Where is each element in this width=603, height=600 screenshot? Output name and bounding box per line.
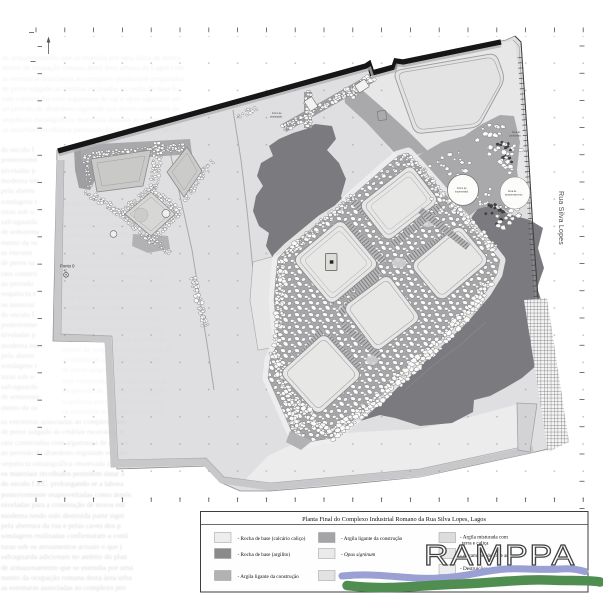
svg-text:de peixe sa: de peixe sa (1, 258, 35, 267)
svg-text:mento da oc: mento da oc (1, 238, 39, 247)
svg-text:pela abertu: pela abertu (1, 186, 35, 195)
svg-text:niveladas p: niveladas p (1, 330, 36, 339)
svg-text:impermeabil.: impermeabil. (455, 190, 469, 193)
svg-text:moderna ten: moderna ten (1, 176, 39, 185)
svg-text:mento da ocupação romana desta: mento da ocupação romana desta área urba (1, 573, 132, 582)
svg-text:salvaguarda adicionais no ambi: salvaguarda adicionais no ambito do plan (1, 552, 127, 561)
svg-text:posteriorme: posteriorme (1, 155, 38, 164)
svg-text:do seculo I: do seculo I (1, 145, 35, 154)
svg-text:armazenamento: armazenamento (505, 193, 523, 196)
svg-text:de armazena: de armazena (1, 227, 40, 236)
svg-text:pela abertu: pela abertu (1, 351, 35, 360)
svg-text:salvaguarda: salvaguarda (1, 382, 38, 391)
svg-text:niveladas p: niveladas p (1, 166, 36, 175)
svg-text:- Argila ligante da construção: - Argila ligante da construção (238, 574, 300, 580)
svg-text:Rua Silva Lopes: Rua Silva Lopes (557, 191, 564, 245)
svg-text:os materiai: os materiai (1, 300, 35, 309)
svg-text:posteriorme: posteriorme (1, 320, 38, 329)
svg-text:ao periodo: ao periodo (1, 279, 33, 288)
svg-text:preparação: preparação (270, 115, 283, 118)
svg-text:ram constru: ram constru (1, 269, 37, 278)
svg-text:- Opus signinum: - Opus signinum (341, 552, 376, 558)
svg-text:sondagens r: sondagens r (1, 197, 38, 206)
svg-text:pela abertura da rua e pelas c: pela abertura da rua e pelas caves dos p (1, 521, 121, 530)
svg-text:de armazenamento que se estend: de armazenamento que se estendia por uma (1, 563, 134, 572)
svg-text:sondagens realizadas confirmar: sondagens realizadas confirmaram a conti (1, 531, 128, 540)
svg-text:salvaguarda: salvaguarda (1, 217, 38, 226)
svg-text:42: 42 (64, 269, 68, 273)
svg-text:moderna ten: moderna ten (1, 341, 39, 350)
svg-text:sondagens r: sondagens r (1, 361, 38, 370)
svg-text:moderna tendo sido destruida p: moderna tendo sido destruida parte signi (1, 511, 124, 520)
svg-text:Planta Final do Complexo Indus: Planta Final do Complexo Industrial Roma… (302, 516, 486, 523)
svg-text:as estrutur: as estrutur (1, 248, 33, 257)
svg-text:- Argila ligante da construção: - Argila ligante da construção (341, 536, 403, 542)
svg-text:mento da oc: mento da oc (1, 403, 39, 412)
svg-text:turas sob o: turas sob o (1, 207, 34, 216)
svg-text:- Rocha de base (argilito): - Rocha de base (argilito) (238, 551, 291, 558)
svg-text:as estruturas associadas ao co: as estruturas associadas ao complexo pro (1, 583, 126, 592)
svg-text:turas sob o: turas sob o (1, 372, 34, 381)
svg-text:Ponto 0: Ponto 0 (60, 264, 75, 269)
svg-text:combustão: combustão (509, 134, 521, 137)
svg-text:- Rocha de base (calcário cali: - Rocha de base (calcário caliço) (238, 535, 306, 542)
svg-text:sequência e: sequência e (1, 289, 37, 298)
svg-text:de armazena: de armazena (1, 392, 40, 401)
svg-text:turas sob os arruamentos actua: turas sob os arruamentos actuais o que j (1, 542, 122, 551)
svg-text:do seculo I: do seculo I (1, 310, 35, 319)
